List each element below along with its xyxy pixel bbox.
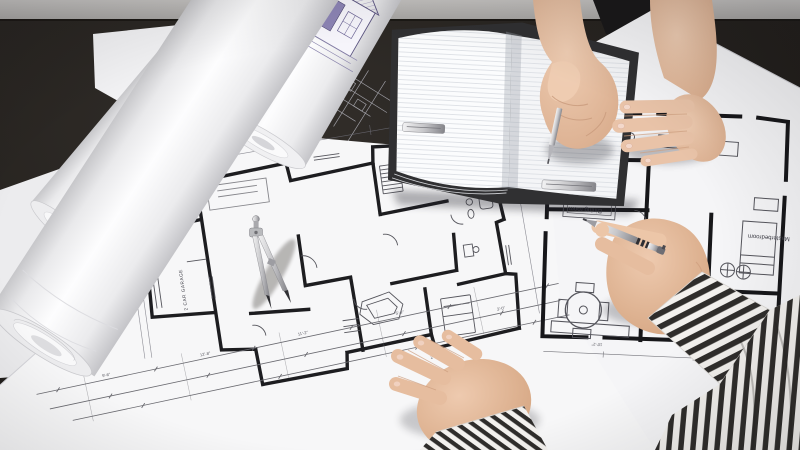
photo-architects-blueprints: 2 CAR GARAGE 8'-6" 2'-8" 9'-6" 12'-8" 11… [0, 0, 800, 450]
scene-canvas: 2 CAR GARAGE 8'-6" 2'-8" 9'-6" 12'-8" 11… [0, 0, 800, 450]
vignette-overlay [0, 0, 800, 450]
